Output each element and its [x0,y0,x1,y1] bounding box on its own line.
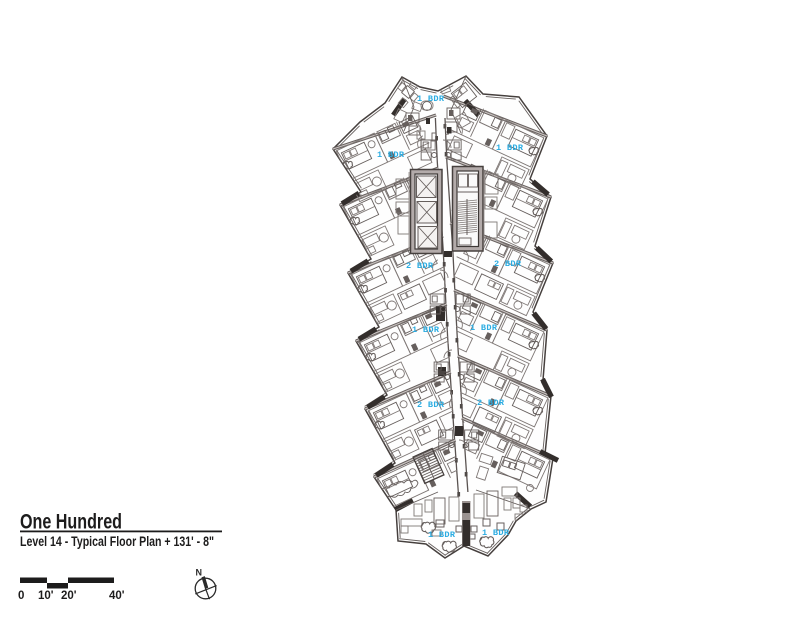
svg-text:2 BDR: 2 BDR [406,261,434,271]
svg-text:1 BDR: 1 BDR [496,143,524,153]
svg-text:1 BDR: 1 BDR [377,150,405,160]
svg-text:2 BDR: 2 BDR [417,400,445,410]
svg-text:1 BDR: 1 BDR [412,325,440,335]
svg-text:2 BDR: 2 BDR [494,259,522,269]
svg-text:1 BDR: 1 BDR [482,528,510,538]
svg-text:1 BDR: 1 BDR [470,323,498,333]
svg-text:Level 14 - Typical Floor Plan: Level 14 - Typical Floor Plan + 131' - 8… [20,534,214,549]
svg-text:2 BDR: 2 BDR [477,398,505,408]
svg-text:N: N [196,568,203,578]
svg-text:1 BDR: 1 BDR [417,94,445,104]
svg-text:0: 0 [18,590,24,602]
svg-text:One Hundred: One Hundred [20,510,122,534]
svg-text:1 BDR: 1 BDR [428,530,456,540]
svg-text:20': 20' [61,590,77,602]
svg-text:10': 10' [38,590,54,602]
svg-text:40': 40' [109,590,125,602]
